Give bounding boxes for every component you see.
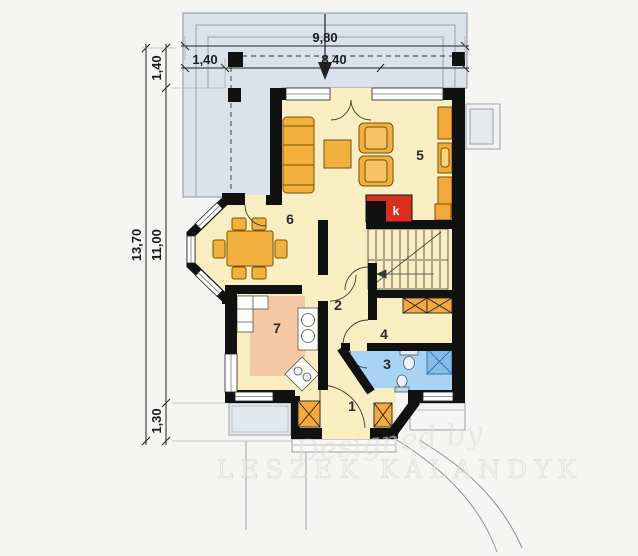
toilet-tank [395, 387, 409, 392]
dining-chair [252, 218, 266, 230]
stove-burner [302, 314, 315, 327]
dim-left-main: 11,00 [149, 229, 164, 261]
floor-plan-drawing: k 1 2 3 [0, 0, 638, 556]
stove-burner [302, 330, 315, 343]
coffee-table [324, 140, 351, 168]
floor-plan-canvas: k 1 2 3 [0, 0, 638, 556]
dining-chair [232, 267, 246, 279]
chimney-inner [470, 109, 493, 144]
room-label-entrance: 1 [348, 398, 356, 414]
dining-chair [252, 267, 266, 279]
kitchen-patio [229, 403, 291, 435]
hall-partition-wall [318, 220, 328, 275]
dining-chair [275, 240, 287, 258]
kitchen-counter [237, 296, 253, 332]
dim-top-offset: 1,40 [192, 52, 217, 67]
dim-top-total: 9,80 [312, 30, 337, 45]
fireplace: k [366, 195, 412, 222]
room-label-living: 5 [416, 147, 424, 163]
terrace-pillar [228, 52, 243, 67]
sofa [283, 117, 314, 193]
terrace-pillar [228, 88, 241, 102]
dim-left-top-offset: 1,40 [149, 55, 164, 80]
dim-top-main: 8,40 [321, 52, 346, 67]
living-left-wall [270, 88, 282, 197]
watermark-name: LESZEK KALANDYK [217, 455, 584, 484]
dining-chair [232, 218, 246, 230]
kitchen-left-wall [225, 294, 237, 354]
dim-left-bottom-offset: 1,30 [149, 408, 164, 433]
dining-kitchen-wall [225, 285, 302, 294]
room-label-storage: 4 [380, 326, 388, 342]
dining-table [227, 231, 273, 266]
room-label-bathroom: 3 [383, 356, 391, 372]
dining-chair [213, 240, 225, 258]
right-exterior-wall [452, 88, 465, 403]
bathroom-top-wall [367, 343, 465, 351]
room-label-dining: 6 [286, 211, 294, 227]
toilet [397, 375, 407, 387]
kitchen-right-wall [318, 301, 328, 390]
cabinet [435, 204, 451, 220]
room-label-kitchen: 7 [273, 320, 281, 336]
dim-left-total: 13,70 [129, 229, 144, 262]
wall-unit [438, 107, 452, 139]
terrace-pillar [452, 52, 465, 66]
room-label-hall: 2 [334, 297, 342, 313]
fireplace-label: k [393, 204, 400, 218]
washbasin [404, 357, 415, 370]
